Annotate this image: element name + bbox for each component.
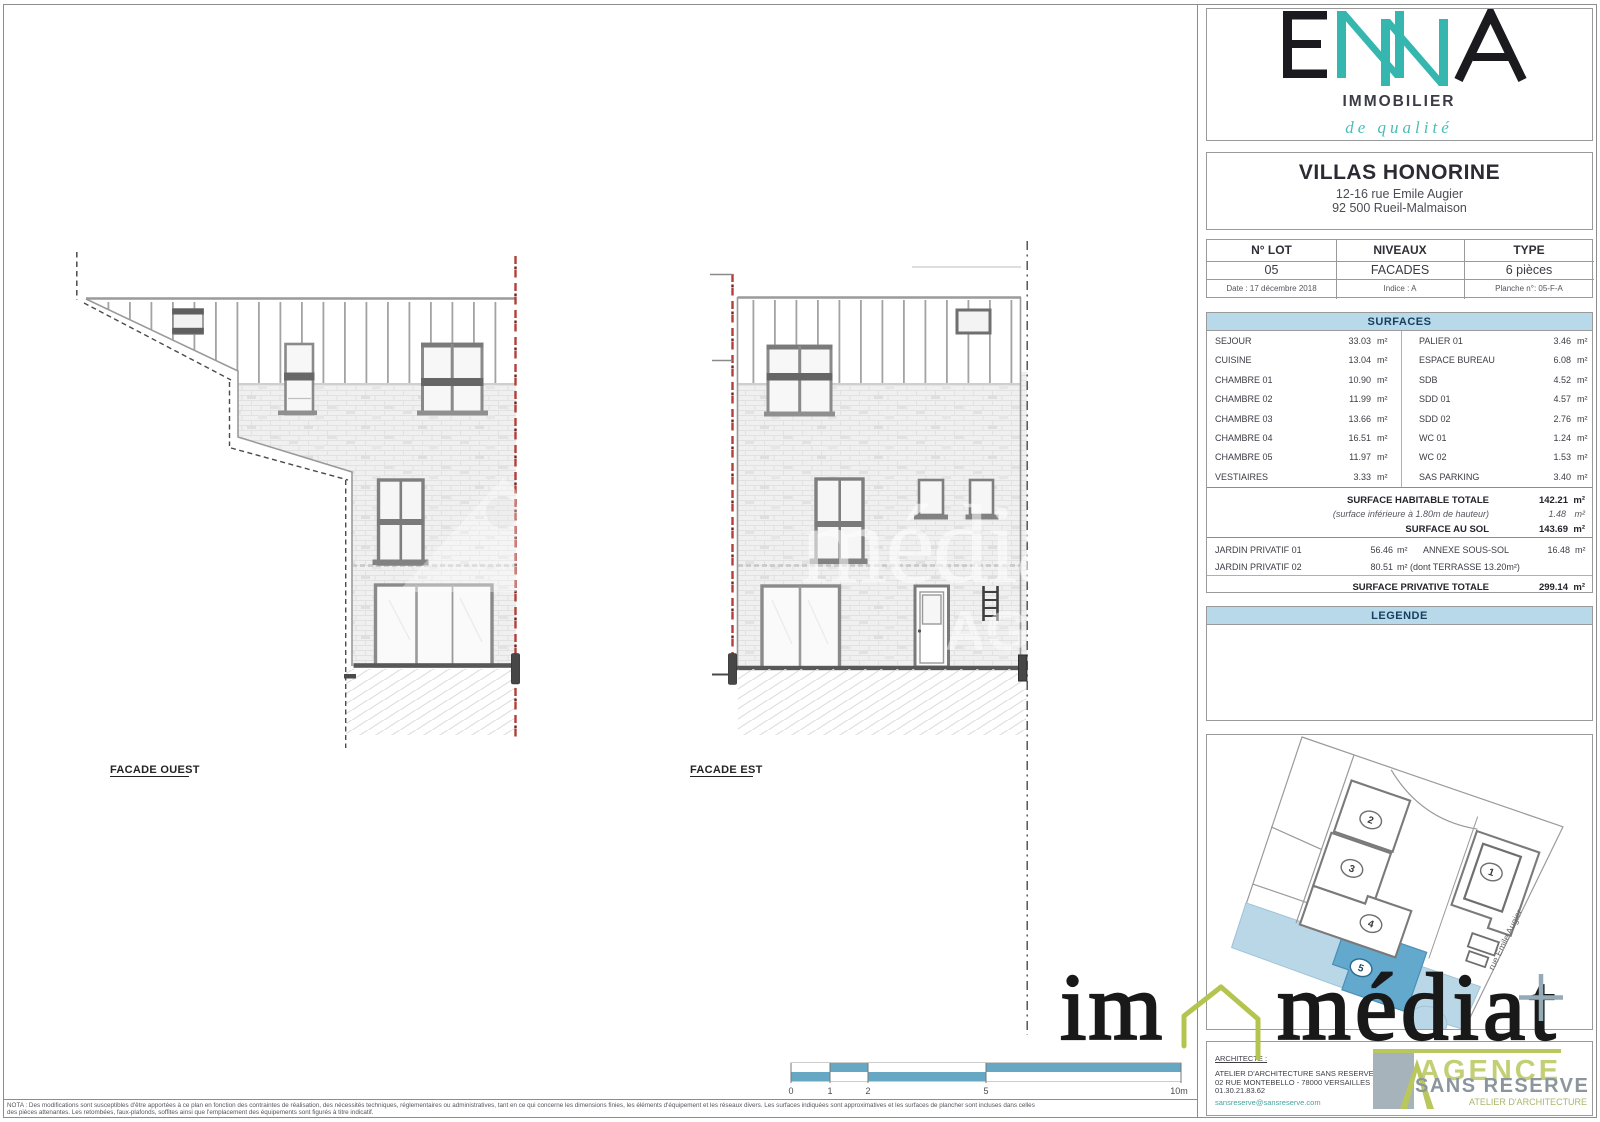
svg-text:FACADE EST: FACADE EST — [690, 764, 763, 776]
svg-text:de qualité: de qualité — [1345, 118, 1453, 137]
svg-text:5: 5 — [983, 1086, 988, 1096]
svg-text:10m: 10m — [1170, 1086, 1188, 1096]
svg-text:1: 1 — [827, 1086, 832, 1096]
svg-text:FACADE OUEST: FACADE OUEST — [110, 764, 200, 776]
svg-text:0: 0 — [788, 1086, 793, 1096]
svg-text:AG: AG — [945, 599, 1029, 662]
svg-text:IMMOBILIER: IMMOBILIER — [1343, 93, 1456, 110]
svg-text:médiat: médiat — [800, 483, 1095, 607]
svg-text:2: 2 — [865, 1086, 870, 1096]
